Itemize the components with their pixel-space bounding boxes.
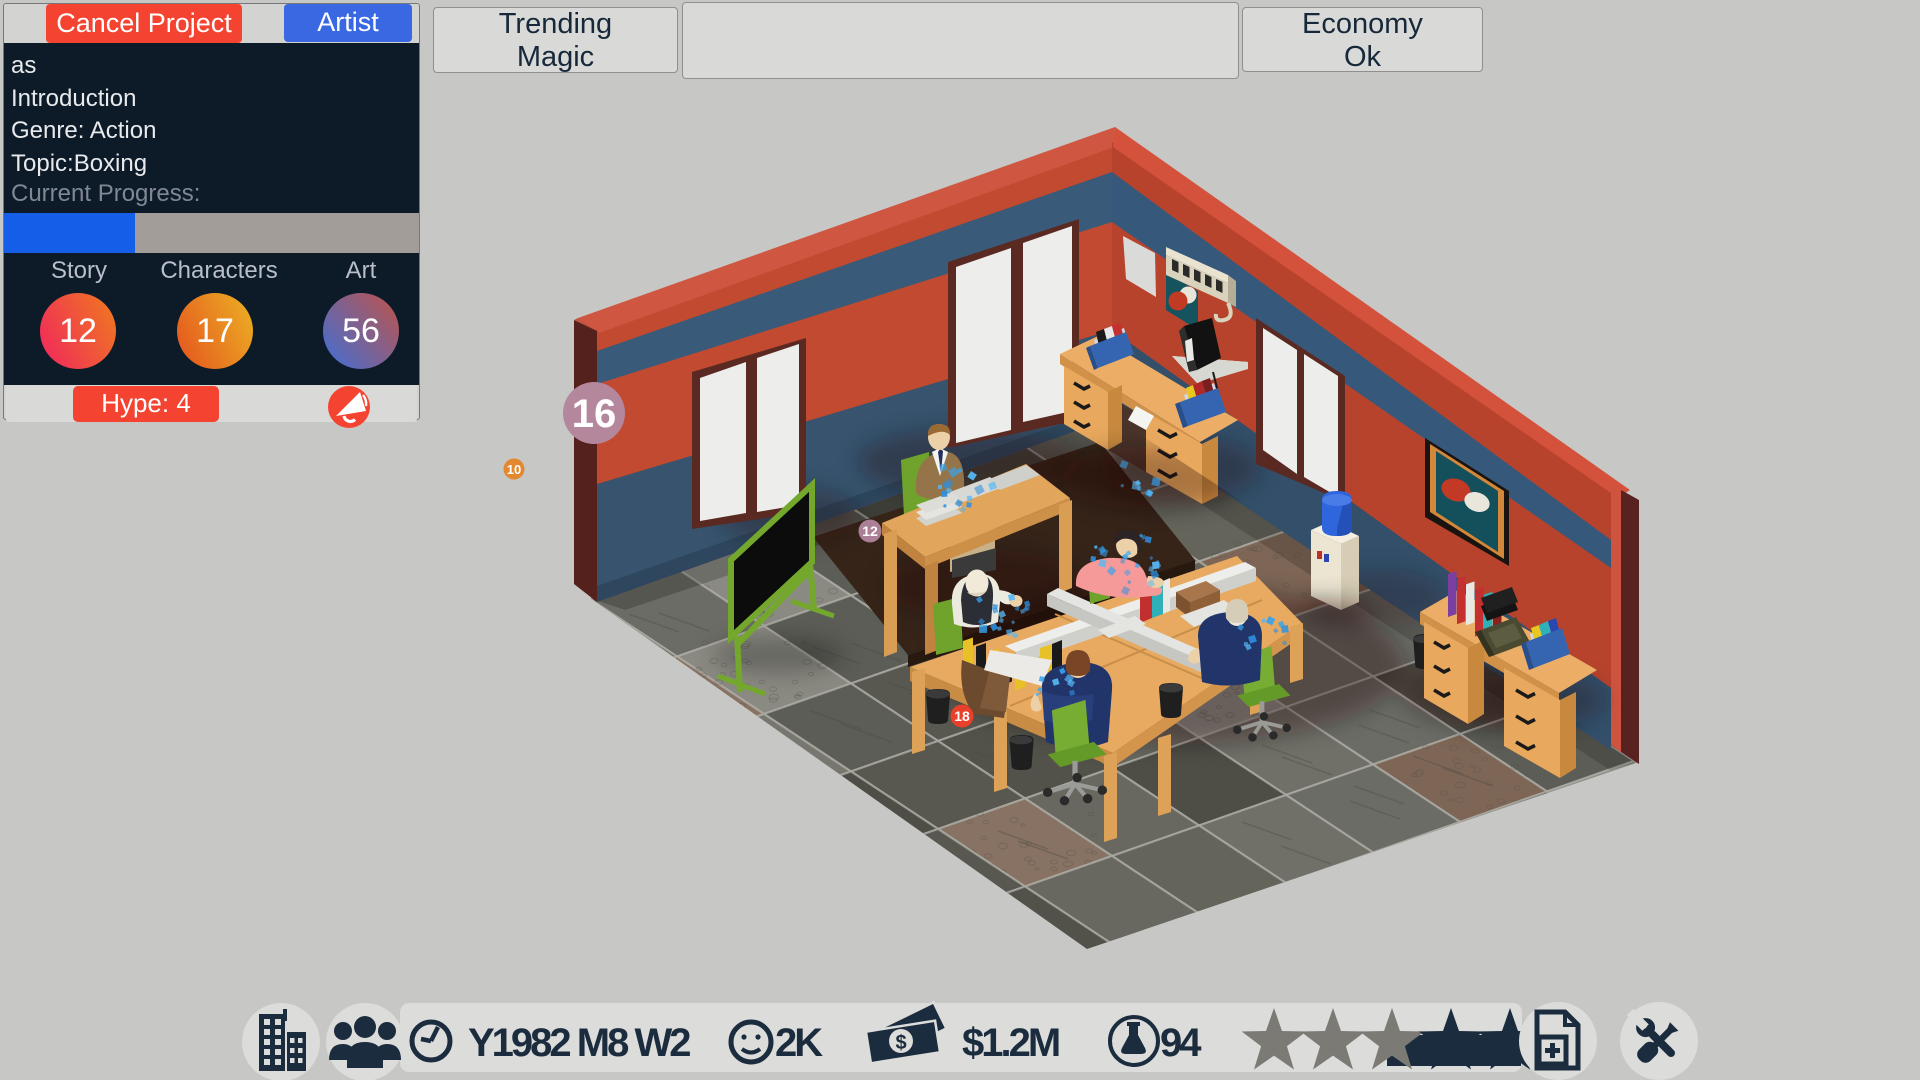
svg-text:18: 18 [954,708,970,724]
svg-text:94: 94 [1160,1021,1202,1065]
svg-text:Y1982 M8 W2: Y1982 M8 W2 [468,1021,690,1065]
svg-text:12: 12 [862,523,878,539]
svg-text:16: 16 [572,392,617,436]
svg-text:$: $ [895,1032,906,1054]
svg-text:10: 10 [507,462,521,477]
svg-text:$1.2M: $1.2M [962,1021,1059,1065]
svg-text:2K: 2K [775,1021,823,1065]
